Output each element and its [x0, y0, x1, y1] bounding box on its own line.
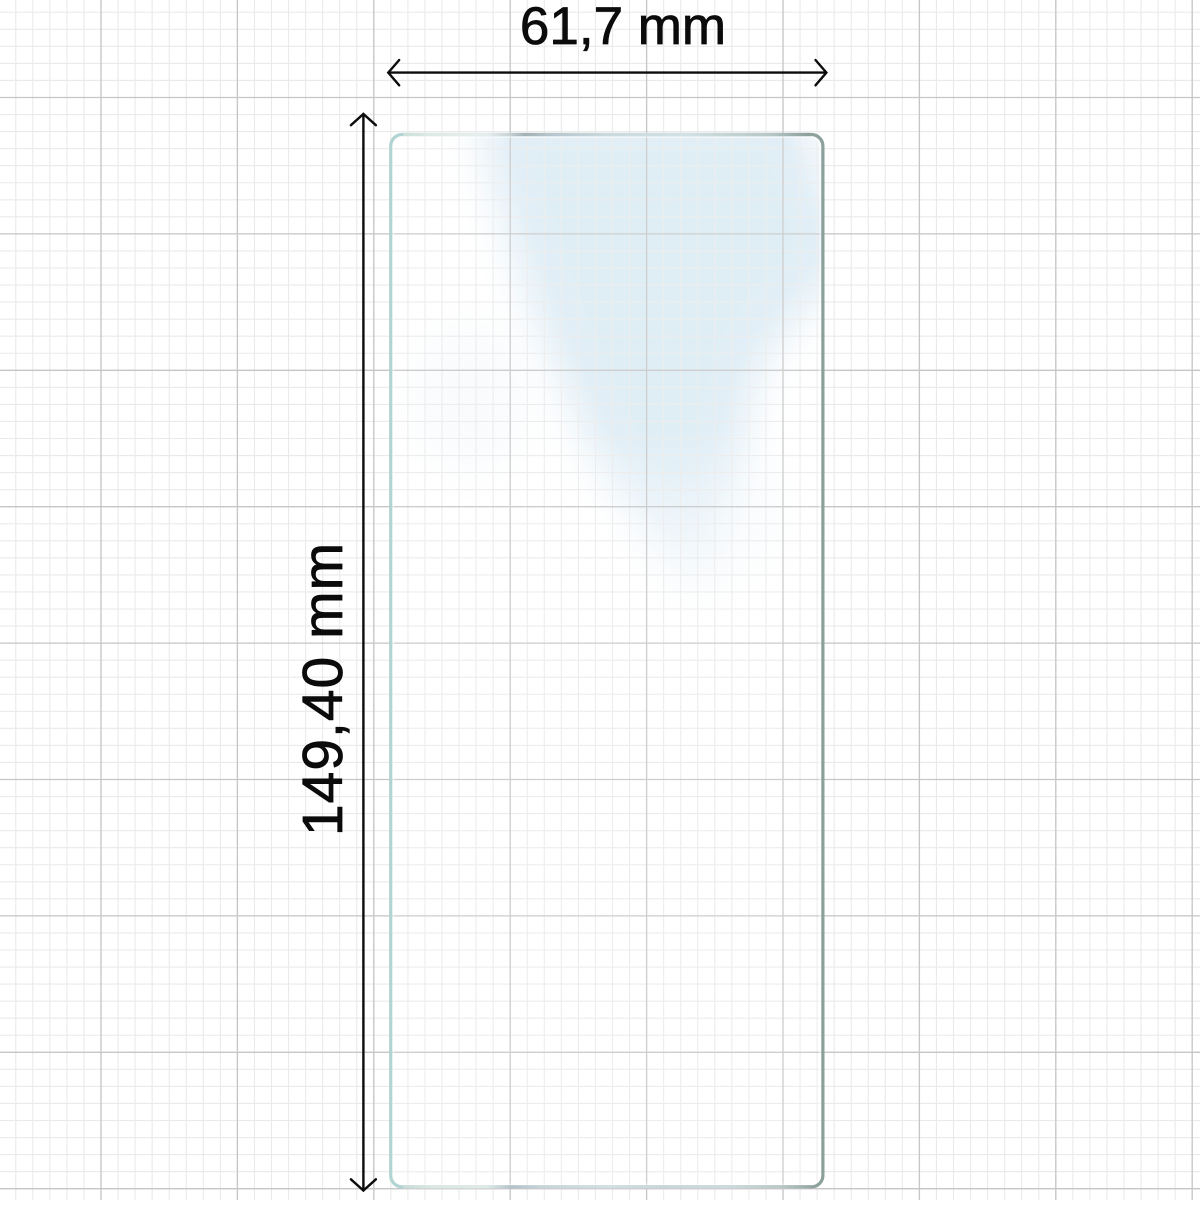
svg-text:149,40 mm: 149,40 mm	[291, 542, 355, 836]
svg-text:61,7 mm: 61,7 mm	[520, 0, 726, 56]
